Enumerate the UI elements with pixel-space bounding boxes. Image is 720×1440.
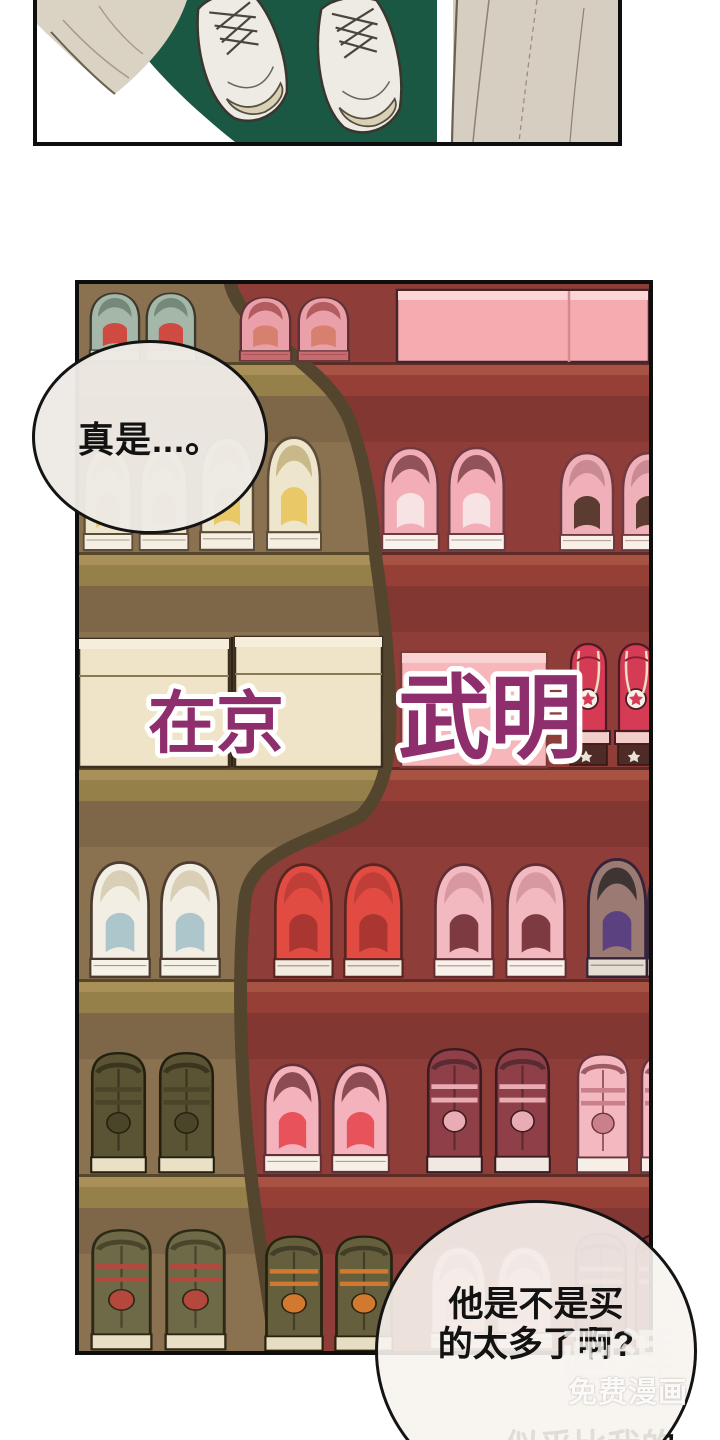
panel1-art bbox=[37, 0, 618, 142]
comic-page: 在京 武明 真是...。 他是不是买 的太多了啊? 画涯 免费漫画 似乎比我的 bbox=[0, 0, 720, 1440]
shoebox-cream-1 bbox=[79, 639, 229, 767]
speech-bubble-top: 真是...。 bbox=[32, 340, 268, 534]
shoebox-pink bbox=[401, 652, 547, 767]
site-watermark-tagline: 免费漫画 bbox=[568, 1369, 688, 1411]
sneaker-pair-purple bbox=[587, 859, 649, 976]
speech-bubble-top-text: 真是...。 bbox=[78, 411, 222, 463]
shoebox-pink-long bbox=[397, 290, 649, 362]
panel-top-sneakers-held bbox=[33, 0, 622, 146]
beige-trousers bbox=[452, 0, 618, 142]
sneaker-pair-pink-right bbox=[560, 453, 649, 550]
shoebox-cream-2 bbox=[232, 637, 382, 767]
